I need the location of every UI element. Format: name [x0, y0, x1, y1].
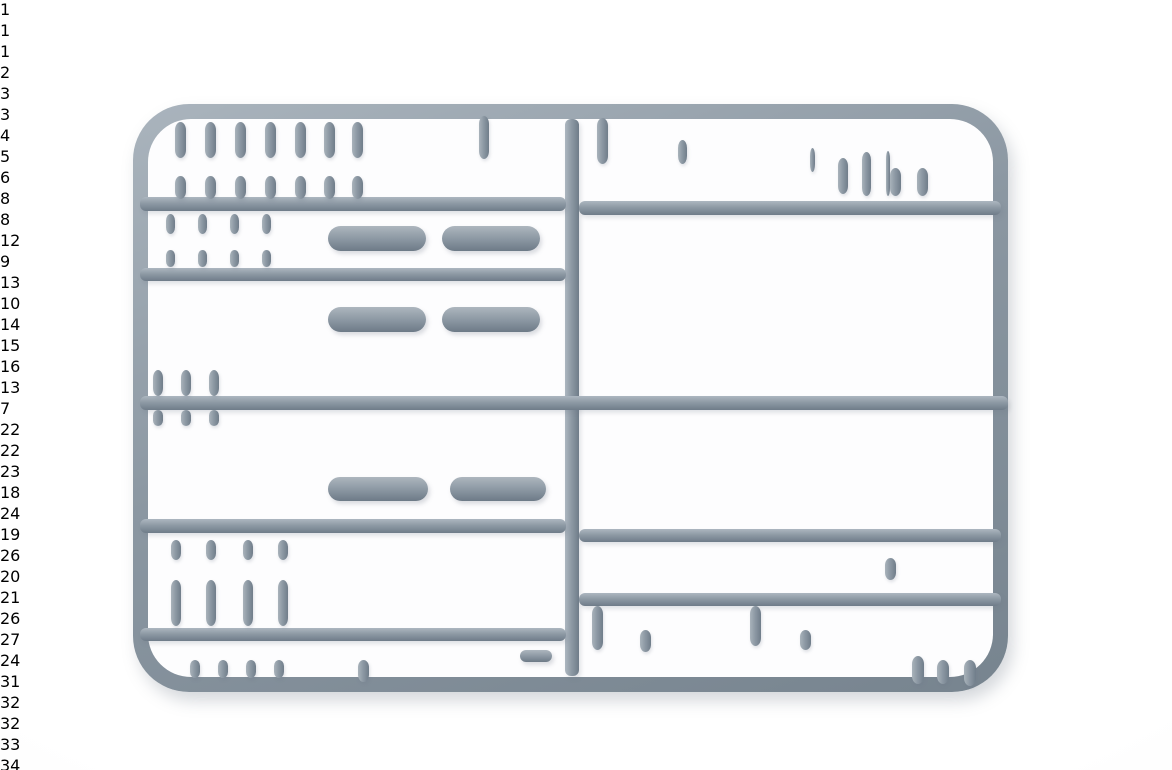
sprue-stub — [612, 500, 621, 529]
bracket-part — [240, 416, 264, 435]
propeller-part — [202, 436, 226, 469]
fuel-tank-part — [458, 430, 556, 460]
ball-joint-part — [884, 144, 891, 151]
x-fin-part — [171, 158, 189, 176]
part-number-tag: 14 — [0, 315, 14, 336]
part-number-tag: 13 — [0, 273, 14, 294]
sprue-rail — [140, 519, 566, 533]
part-number-tag: 6 — [0, 168, 14, 189]
sprue-stub — [740, 212, 748, 221]
part-number-tag: 31 — [0, 672, 14, 693]
x-fin-part — [231, 158, 249, 176]
part-number-tag: 4 — [0, 126, 14, 147]
sprue-stub — [481, 372, 491, 396]
cylinder-part — [324, 176, 335, 199]
sprue-stub — [810, 172, 817, 198]
x-fin-part — [320, 158, 338, 176]
sprue-stub — [473, 500, 483, 519]
sprue-stub — [912, 410, 920, 424]
cylinder-part — [190, 660, 200, 678]
part-number-text: 32 — [0, 693, 20, 712]
part-number-text: 10 — [0, 294, 20, 313]
cylinder-part — [838, 158, 848, 194]
x-fin-part — [291, 158, 309, 176]
wire-part — [964, 618, 986, 660]
part-number-text: 32 — [0, 714, 20, 733]
cylinder-part — [209, 370, 219, 396]
part-number-tag: 26 — [0, 546, 14, 567]
sprue-stub — [812, 410, 823, 427]
part-number-text: 33 — [0, 735, 20, 754]
sprue-stub — [770, 541, 778, 551]
drop-tank-part — [328, 307, 426, 332]
part-number-tag: 2 — [0, 63, 14, 84]
sprue-rail — [579, 529, 1001, 542]
cylinder-part — [206, 540, 216, 560]
part-number-text: 21 — [0, 588, 20, 607]
sprue-stub — [666, 410, 677, 427]
cylinder-part — [262, 250, 271, 267]
cylinder-part — [265, 176, 276, 199]
propeller-blade — [914, 478, 972, 492]
part-number-tag: 15 — [0, 336, 14, 357]
drop-tank-part — [450, 477, 546, 501]
cylinder-part — [597, 118, 608, 164]
cylinder-part — [171, 540, 181, 560]
cylinder-part — [678, 140, 687, 164]
part-number-tag: 27 — [0, 630, 14, 651]
sprue-stub — [618, 541, 626, 547]
ball-joint-part — [892, 160, 899, 167]
cylinder-part — [278, 580, 288, 626]
part-number-text: 1 — [0, 0, 10, 19]
fuel-tank-part — [688, 478, 766, 501]
sprue-stub — [979, 606, 987, 612]
part-number-tag: 5 — [0, 147, 14, 168]
part-number-text: 4 — [0, 126, 10, 145]
propeller-blade — [202, 449, 206, 454]
part-number-tag: 10 — [0, 294, 14, 315]
sprue-stub — [304, 410, 312, 416]
cylinder-part — [274, 660, 284, 678]
part-number-tag: 22 — [0, 420, 14, 441]
ball-joint-part — [919, 160, 926, 167]
part-number-tag: 3 — [0, 84, 14, 105]
part-number-text: 9 — [0, 252, 10, 271]
drop-tank-part — [328, 226, 426, 251]
sprue-stub — [903, 232, 912, 260]
propeller-hub — [154, 448, 163, 457]
sprue-stub — [614, 372, 625, 396]
sprue-stub — [519, 500, 529, 519]
propeller-hub — [184, 458, 189, 463]
part-number-text: 20 — [0, 567, 20, 586]
hook-part — [274, 560, 288, 574]
bar-part — [440, 158, 532, 166]
fuel-tank-part — [592, 341, 722, 372]
part-number-text: 2 — [0, 63, 10, 82]
cylinder-part — [235, 122, 246, 158]
propeller-blade — [174, 449, 178, 454]
part-number-text: 18 — [0, 483, 20, 502]
part-number-text: 22 — [0, 420, 20, 439]
sprue-stub — [742, 292, 750, 303]
fuel-tank-part — [736, 426, 858, 460]
propeller-part — [146, 436, 170, 469]
sprue-stub — [490, 644, 498, 652]
x-fin-part — [201, 158, 219, 176]
sprue-stub — [250, 385, 258, 396]
part-number-tag: 9 — [0, 252, 14, 273]
sprue-stub — [250, 410, 258, 416]
sprue-stub — [357, 533, 364, 548]
propeller-blade — [166, 449, 170, 454]
cylinder-part — [198, 214, 207, 234]
bracket-part — [240, 360, 264, 379]
part-number-tag: 12 — [0, 231, 14, 252]
part-number-text: 26 — [0, 609, 20, 628]
fuel-tank-part — [736, 341, 858, 372]
cylinder-part — [243, 540, 253, 560]
part-number-text: 31 — [0, 672, 20, 691]
sprue-stub — [351, 281, 361, 308]
cylinder-part — [175, 122, 186, 158]
cylinder-part — [205, 122, 216, 158]
part-number-text: 19 — [0, 525, 20, 544]
cylinder-part — [479, 116, 489, 159]
cylinder-part — [175, 176, 186, 199]
part-number-text: 24 — [0, 504, 20, 523]
sprue-stub — [906, 521, 914, 529]
sprue-stub — [367, 372, 377, 396]
sprue-stub — [614, 410, 625, 427]
cylinder-part — [243, 580, 253, 626]
hook-part — [194, 234, 206, 246]
part-number-tag: 7 — [0, 399, 14, 420]
part-number-tag: 24 — [0, 651, 14, 672]
sprue-stub — [740, 232, 748, 242]
part-number-tag: 24 — [0, 504, 14, 525]
cylinder-part — [181, 410, 191, 426]
sprue-stub — [395, 533, 402, 548]
part-number-text: 27 — [0, 630, 20, 649]
cylinder-part — [153, 410, 163, 426]
sprue-photo: 1112334568812913101415161372222231824192… — [0, 0, 1172, 770]
part-number-tag: 32 — [0, 714, 14, 735]
cylinder-part — [937, 660, 949, 684]
propeller-hub — [229, 336, 240, 347]
sprue-rail — [140, 628, 566, 641]
part-number-text: 7 — [0, 399, 10, 418]
sprue-stub — [351, 500, 361, 519]
cylinder-part — [235, 176, 246, 199]
cylinder-part — [912, 656, 924, 684]
cylinder-part — [324, 122, 335, 158]
part-number-text: 13 — [0, 273, 20, 292]
sprue-stub — [351, 249, 361, 268]
cylinder-part — [206, 580, 216, 626]
part-number-tag: 21 — [0, 588, 14, 609]
bar-part — [306, 652, 444, 660]
sprue-stub — [646, 500, 655, 529]
propeller-blade — [242, 319, 306, 334]
sprue-stub — [409, 410, 419, 431]
cylinder-part — [640, 630, 651, 652]
part-number-tag: 32 — [0, 693, 14, 714]
cylinder-part — [295, 176, 306, 199]
cylinder-part — [181, 370, 191, 396]
fuel-tank-part — [596, 214, 652, 233]
propeller-hub — [899, 478, 913, 492]
sprue-stub — [840, 232, 848, 242]
cylinder-part — [278, 540, 288, 560]
propeller-hub — [903, 316, 914, 327]
sprue-stub — [399, 249, 409, 268]
sprue-stub — [676, 206, 684, 215]
propeller-hub — [156, 458, 161, 463]
part-number-text: 3 — [0, 84, 10, 103]
bar-part — [735, 302, 851, 312]
sprue-stub — [958, 364, 966, 380]
hook-part — [258, 234, 270, 246]
cylinder-part — [262, 214, 271, 234]
part-number-tag: 8 — [0, 210, 14, 231]
sprue-stub — [399, 500, 409, 519]
fuel-tank-part — [660, 214, 712, 233]
part-number-tag: 16 — [0, 357, 14, 378]
ball-joint-part — [808, 140, 816, 148]
bracket-part — [608, 545, 632, 561]
part-number-text: 15 — [0, 336, 20, 355]
part-number-text: 5 — [0, 147, 10, 166]
cylinder-part — [265, 122, 276, 158]
sprue-stub — [399, 281, 409, 308]
propeller-hub — [227, 320, 242, 335]
sprue-stub — [523, 372, 533, 396]
propeller-hub — [212, 458, 217, 463]
sprue-stub — [412, 533, 419, 548]
sprue-stub — [783, 170, 790, 198]
propeller-hub — [210, 448, 219, 457]
bracket-part — [294, 416, 318, 435]
fuel-tank-part — [662, 560, 710, 576]
drop-tank-part — [442, 226, 540, 251]
sprue-stub — [958, 212, 966, 221]
sprue-stub — [612, 206, 620, 215]
part-number-text: 8 — [0, 189, 10, 208]
propeller-hub — [182, 448, 191, 457]
sprue-stub — [634, 206, 642, 215]
part-number-text: 16 — [0, 357, 20, 376]
sprue-stub — [304, 385, 312, 396]
part-number-text: 6 — [0, 168, 10, 187]
cylinder-part — [230, 250, 239, 267]
part-number-text: 23 — [0, 462, 20, 481]
sprue-stub — [219, 641, 227, 650]
drop-tank-part — [520, 650, 552, 662]
hook-part — [162, 234, 174, 246]
part-number-tag: 20 — [0, 567, 14, 588]
sprue-stub — [523, 410, 533, 431]
sprue-stub — [766, 170, 773, 198]
propeller-blade — [163, 319, 227, 334]
fork-part — [926, 620, 944, 654]
cylinder-part — [153, 370, 163, 396]
propeller-blade — [222, 449, 226, 454]
cylinder-part — [800, 630, 811, 650]
propeller-blade — [916, 299, 978, 314]
part-number-tag: 22 — [0, 441, 14, 462]
sprue-stub — [704, 500, 713, 529]
part-number-text: 3 — [0, 105, 10, 124]
ball-joint-part — [350, 157, 365, 172]
bar-part — [863, 220, 981, 232]
part-number-tag: 34 — [0, 756, 14, 770]
part-number-tag: 19 — [0, 525, 14, 546]
sprue-stub — [513, 281, 523, 308]
cylinder-part — [862, 152, 871, 196]
part-number-tag: 1 — [0, 0, 14, 21]
sprue-stub — [465, 281, 475, 308]
part-number-tag: 13 — [0, 378, 14, 399]
cylinder-part — [171, 580, 181, 626]
sprue-rail — [140, 396, 1008, 410]
hook-part — [226, 234, 238, 246]
fuel-tank-part — [596, 560, 646, 576]
cylinder-part — [917, 168, 928, 196]
part-number-text: 26 — [0, 546, 20, 565]
propeller-part — [839, 288, 977, 327]
bar-part — [585, 164, 665, 172]
sprue-stub — [840, 212, 848, 221]
bar-part — [586, 623, 736, 630]
propeller-hub — [901, 300, 916, 315]
sprue-stub — [738, 500, 747, 529]
sprue-stub — [758, 372, 769, 396]
part-number-text: 24 — [0, 651, 20, 670]
sprue-stub — [889, 550, 897, 558]
bar-part — [733, 220, 853, 232]
fuel-tank-part — [592, 426, 722, 460]
part-number-text: 8 — [0, 210, 10, 229]
cylinder-part — [810, 148, 815, 172]
bracket-part — [670, 240, 690, 256]
u-bracket-part — [389, 548, 413, 588]
propeller-blade — [841, 478, 899, 492]
cylinder-part — [246, 660, 256, 678]
cylinder-part — [890, 168, 901, 196]
bracket-part — [905, 426, 931, 440]
bracket-part — [760, 140, 790, 164]
sprue-stub — [513, 249, 523, 268]
sprue-stub — [685, 541, 693, 547]
part-number-text: 14 — [0, 315, 20, 334]
bracket-part — [610, 240, 630, 256]
drop-tank-part — [442, 307, 540, 332]
bar-part — [664, 164, 748, 172]
cylinder-part — [198, 250, 207, 267]
part-number-tag: 23 — [0, 462, 14, 483]
bar-part — [743, 623, 845, 630]
part-number-text: 34 — [0, 756, 20, 770]
sprue-stub — [666, 372, 677, 396]
fuel-tank-part — [345, 430, 441, 460]
fuel-tank-part — [596, 478, 676, 501]
hook-part — [167, 560, 181, 574]
propeller-blade — [194, 449, 198, 454]
part-number-tag: 26 — [0, 609, 14, 630]
cylinder-part — [352, 176, 363, 199]
cylinder-part — [295, 122, 306, 158]
propeller-blade — [146, 449, 150, 454]
hook-part — [239, 560, 253, 574]
part-number-tag: 33 — [0, 735, 14, 756]
sprue-stub — [758, 410, 769, 427]
cylinder-part — [209, 410, 219, 426]
sprue-stub — [275, 641, 283, 650]
sprue-stub — [696, 206, 704, 215]
part-number-tag: 18 — [0, 483, 14, 504]
cylinder-part — [358, 660, 369, 682]
sprue-stub — [247, 641, 255, 650]
part-number-tag: 8 — [0, 189, 14, 210]
u-bracket-part — [334, 548, 358, 588]
x-fin-part — [261, 158, 279, 176]
sprue-rail — [579, 201, 1001, 215]
disc-part — [870, 622, 906, 632]
cylinder-part — [166, 214, 175, 234]
sprue-rail — [579, 593, 1001, 606]
fuel-tank-part — [458, 346, 556, 373]
cylinder-part — [205, 176, 216, 199]
part-number-text: 1 — [0, 21, 10, 40]
cylinder-part — [230, 214, 239, 234]
sprue-stub — [938, 606, 946, 612]
sprue-stub — [884, 632, 889, 646]
cylinder-part — [964, 660, 976, 686]
sprue-rail — [140, 197, 566, 211]
part-number-text: 13 — [0, 378, 20, 397]
cylinder-part — [352, 122, 363, 158]
part-number-tag: 3 — [0, 105, 14, 126]
sprue-stub — [191, 641, 199, 650]
fuel-tank-part — [345, 346, 441, 373]
part-number-text: 22 — [0, 441, 20, 460]
cylinder-part — [166, 250, 175, 267]
sprue-stub — [409, 372, 419, 396]
sprue-stub — [340, 533, 347, 548]
propeller-hub — [901, 464, 911, 474]
part-number-tag: 1 — [0, 42, 14, 63]
part-number-text: 1 — [0, 42, 10, 61]
propeller-part — [174, 436, 198, 469]
cylinder-part — [218, 660, 228, 678]
sprue-rail — [140, 268, 566, 281]
propeller-blade — [839, 299, 901, 314]
sprue-stub — [868, 212, 876, 221]
drop-tank-part — [328, 477, 428, 501]
sprue-stub — [620, 262, 628, 280]
part-number-tag: 1 — [0, 21, 14, 42]
sprue-stub — [958, 410, 966, 424]
bracket-part — [944, 426, 969, 440]
hook-part — [202, 560, 216, 574]
bar-part — [383, 159, 431, 166]
sprue-stub — [680, 262, 688, 286]
part-number-text: 12 — [0, 231, 20, 250]
sprue-stub — [812, 372, 823, 396]
sprue-stub — [481, 410, 491, 431]
